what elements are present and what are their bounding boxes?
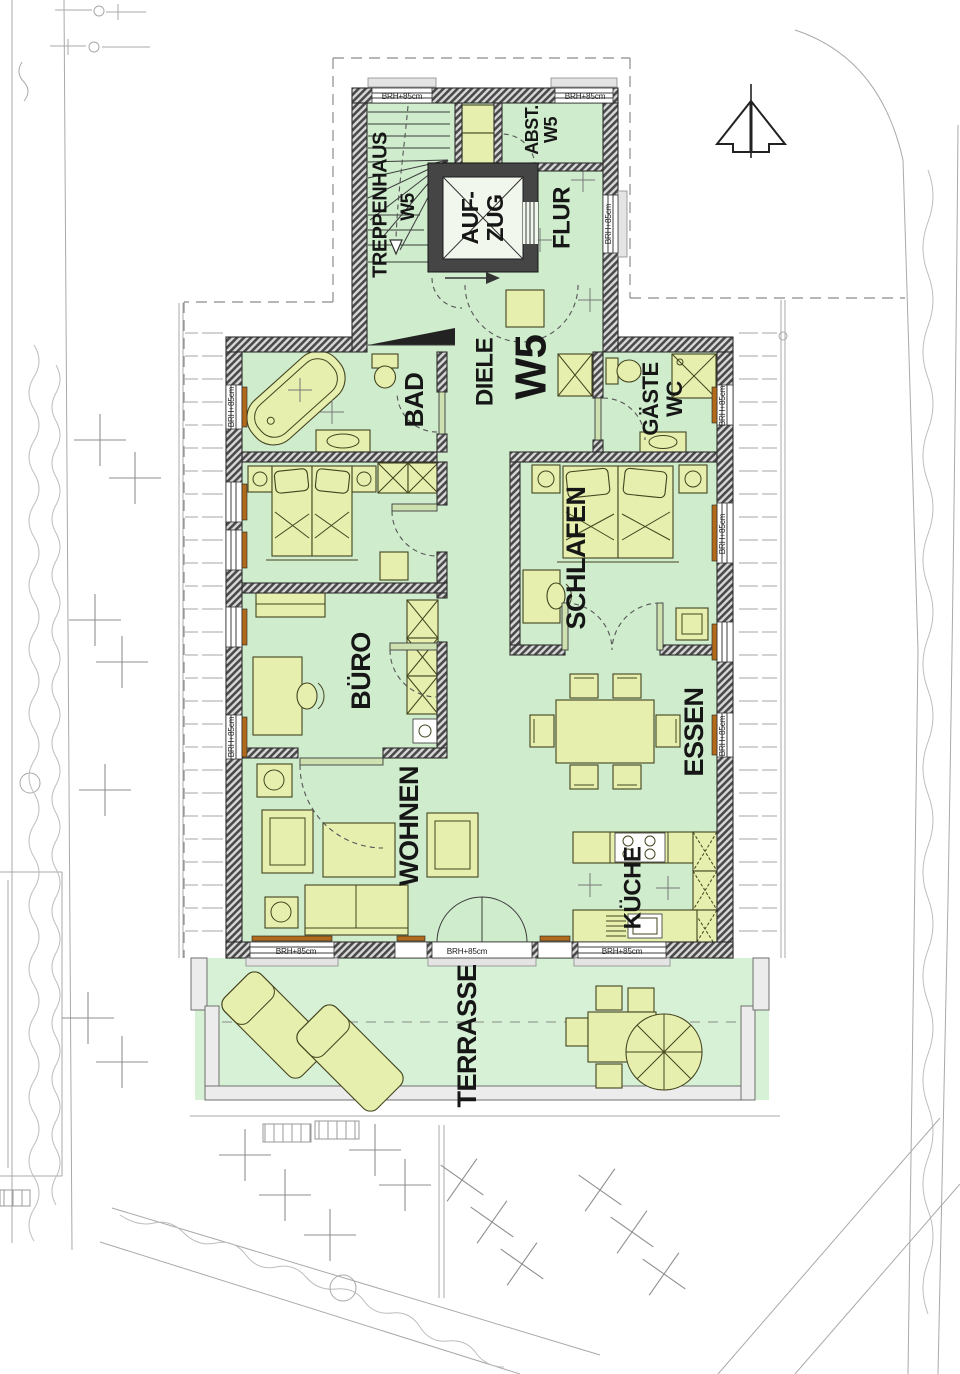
sill-annotation: BRH+85cm (276, 947, 317, 956)
office-wardrobe (407, 600, 438, 714)
sill-annotation: BRH+85cm (565, 92, 606, 101)
office-shelf (256, 592, 325, 617)
sill-annotation: BRH+85cm (718, 513, 727, 554)
north-arrow-icon (717, 84, 785, 158)
sill-annotation: BRH+85cm (227, 716, 236, 757)
hall-wardrobe (558, 354, 592, 396)
label-aufzug-2: ZUG (482, 194, 508, 241)
floor-plan-canvas: TREPPENHAUS W5 AUF- ZUG ABST. W5 FLUR DI… (0, 0, 960, 1374)
coffee-table (323, 823, 395, 877)
label-aufzug-1: AUF- (457, 192, 483, 245)
site-grid-marks (62, 414, 161, 1088)
survey-marker-icon (19, 4, 150, 101)
label-gaeste-wc-1: GÄSTE (638, 362, 663, 435)
wardrobe (378, 463, 438, 493)
label-wohnen: WOHNEN (394, 766, 424, 886)
label-flur: FLUR (548, 187, 575, 249)
site-boundary-right (795, 30, 958, 1374)
label-gaeste-wc-2: WC (662, 381, 687, 417)
label-buero: BÜRO (346, 632, 376, 710)
label-unit-w5: W5 (507, 334, 556, 399)
label-treppenhaus: TREPPENHAUS (369, 132, 391, 278)
bathroom-sink (316, 430, 370, 452)
sill-annotation: BRH+85cm (718, 385, 727, 426)
side-table (676, 608, 708, 640)
parasol-icon (626, 1014, 702, 1090)
label-essen: ESSEN (679, 687, 709, 776)
sill-annotation: BRH+85cm (718, 715, 727, 756)
printer-stand (413, 719, 438, 743)
label-kueche: KÜCHE (619, 846, 646, 929)
label-bad: BAD (399, 373, 429, 428)
sill-annotation: BRH+85cm (602, 947, 643, 956)
bedroom-rug (380, 552, 408, 580)
guest-wc-toilet (606, 358, 641, 384)
sill-annotation: BRH+85cm (382, 92, 423, 101)
toilet (372, 354, 398, 388)
label-terrasse: TERRASSE (452, 964, 482, 1107)
label-treppenhaus-unit: W5 (398, 192, 419, 220)
sill-annotation: BRH+85cm (604, 203, 613, 244)
sill-annotation: BRH+85cm (447, 947, 488, 956)
road-edge (718, 1118, 960, 1374)
label-abstellraum-2: W5 (541, 117, 561, 143)
label-abstellraum-1: ABST. (522, 105, 542, 155)
floor-plan-drawing: TREPPENHAUS W5 AUF- ZUG ABST. W5 FLUR DI… (0, 0, 960, 1374)
sill-annotation: BRH+85cm (227, 386, 236, 427)
label-schlafen: SCHLAFEN (561, 487, 591, 630)
hedge-bottom (120, 1215, 504, 1367)
doormat (506, 290, 544, 327)
label-diele: DIELE (471, 337, 498, 406)
dining-table (556, 700, 654, 763)
